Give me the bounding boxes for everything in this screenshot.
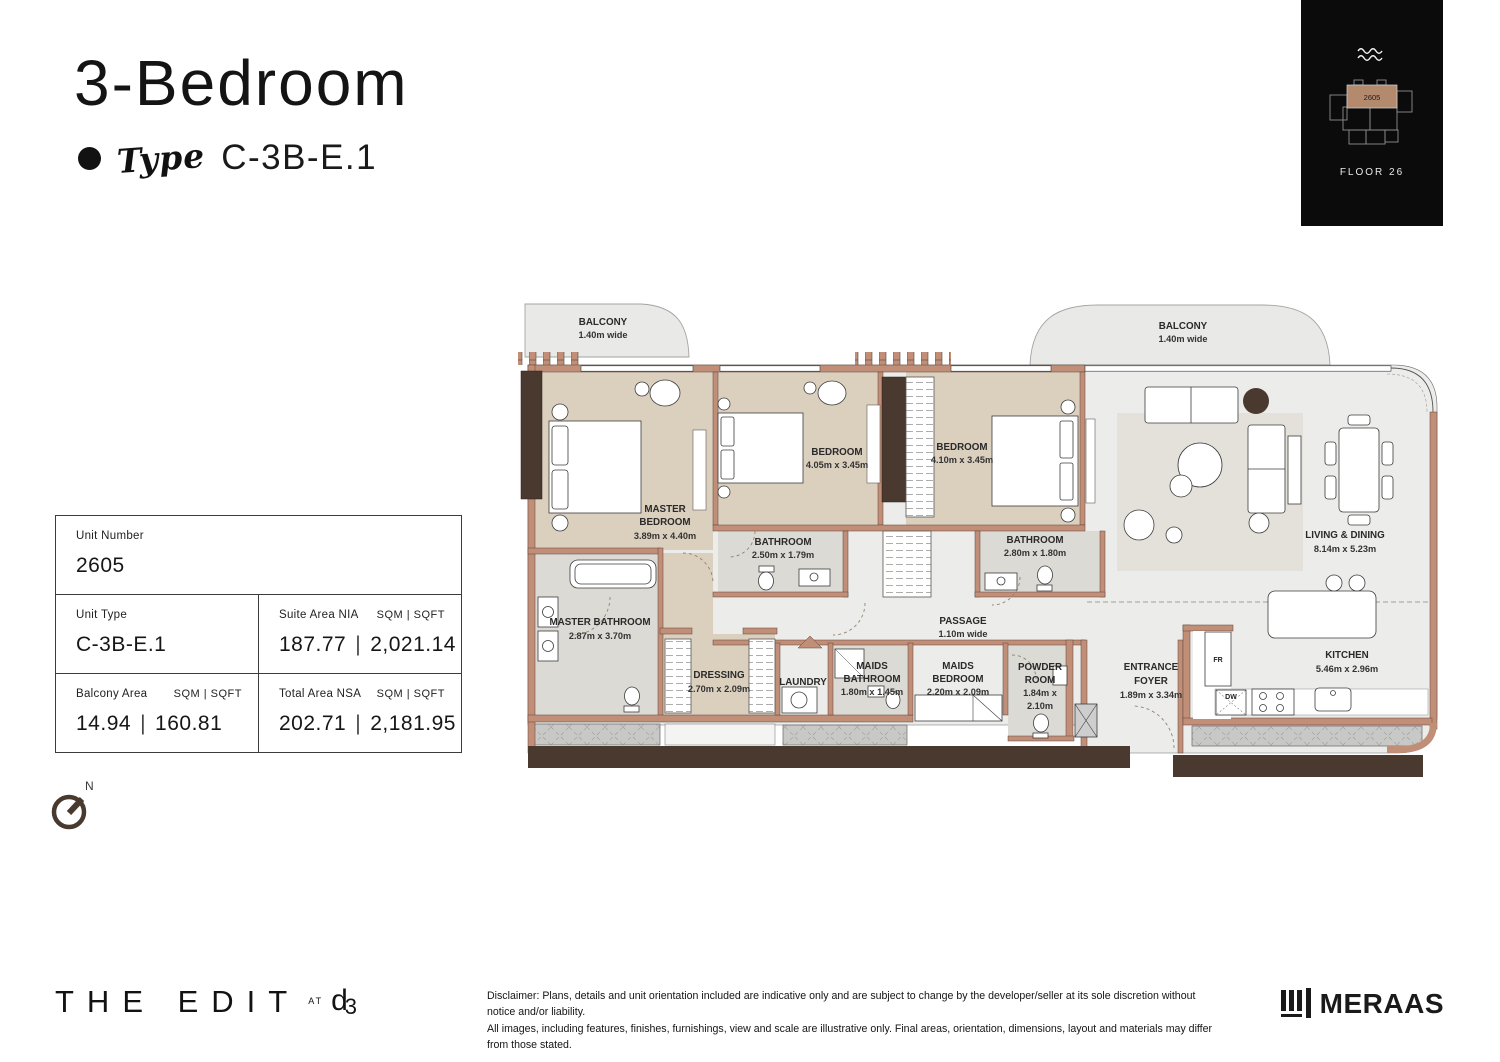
corridor-band-right bbox=[1173, 755, 1423, 777]
label-living-dining: LIVING & DINING bbox=[1305, 530, 1385, 541]
label-master-bathroom: MASTER BATHROOM bbox=[549, 617, 650, 628]
label-maids-bedroom-1: MAIDS bbox=[942, 661, 974, 672]
hatched-strips bbox=[530, 724, 1422, 746]
unit-number-label: Unit Number bbox=[76, 530, 461, 542]
page-title: 3-Bedroom bbox=[74, 46, 409, 120]
balcony-area-value: 14.94|160.81 bbox=[76, 712, 258, 736]
total-area-label: Total Area NSA bbox=[279, 688, 361, 700]
foyer-shaft bbox=[1075, 704, 1097, 737]
the-edit-wordmark: THE EDIT bbox=[55, 984, 300, 1020]
label-maids-bedroom-2: BEDROOM bbox=[932, 674, 983, 685]
meraas-bars-icon bbox=[1281, 990, 1302, 1017]
disclaimer-line-1: Disclaimer: Plans, details and unit orie… bbox=[487, 988, 1217, 1021]
label-passage-dim: 1.10m wide bbox=[938, 629, 987, 639]
label-kitchen-dim: 5.46m x 2.96m bbox=[1316, 664, 1378, 674]
maids-bed bbox=[915, 695, 1002, 721]
parapet-teeth-mid bbox=[855, 352, 951, 365]
disclaimer-text: Disclaimer: Plans, details and unit orie… bbox=[487, 988, 1217, 1054]
label-powder-2: ROOM bbox=[1025, 675, 1055, 686]
label-balcony-right-dim: 1.40m wide bbox=[1158, 334, 1207, 344]
label-laundry: LAUNDRY bbox=[779, 677, 827, 688]
keyplan-unit-number: 2605 bbox=[1363, 93, 1380, 102]
keyplan-panel: 2605 FLOOR 26 bbox=[1301, 0, 1443, 226]
label-bathroom1-dim: 2.50m x 1.79m bbox=[752, 550, 814, 560]
bullet-icon bbox=[78, 147, 101, 170]
label-bedroom2-dim: 4.05m x 3.45m bbox=[806, 460, 868, 470]
balcony-area-units: SQM | SQFT bbox=[174, 688, 242, 700]
suite-area-value: 187.77|2,021.14 bbox=[279, 633, 461, 657]
floorplan-svg: BALCONY 1.40m wide BALCONY 1.40m wide MA… bbox=[515, 295, 1445, 780]
suite-area-units: SQM | SQFT bbox=[377, 609, 445, 621]
total-area-value: 202.71|2,181.95 bbox=[279, 712, 461, 736]
label-dressing-dim: 2.70m x 2.09m bbox=[688, 684, 750, 694]
label-powder-dim1: 1.84m x bbox=[1023, 688, 1058, 698]
total-area-units: SQM | SQFT bbox=[377, 688, 445, 700]
suite-area-label: Suite Area NIA bbox=[279, 609, 359, 621]
disclaimer-line-2: All images, including features, finishes… bbox=[487, 1021, 1217, 1054]
master-bed bbox=[549, 404, 641, 531]
label-bathroom1: BATHROOM bbox=[755, 537, 812, 548]
label-powder-dim2: 2.10m bbox=[1027, 701, 1053, 711]
meraas-tall-bar-icon bbox=[1306, 988, 1311, 1018]
label-foyer-1: ENTRANCE bbox=[1124, 662, 1179, 673]
d3-logo-3: 3 bbox=[345, 994, 357, 1020]
compass-north-label: N bbox=[85, 779, 94, 793]
table-row-unit-number: Unit Number 2605 bbox=[56, 516, 461, 594]
label-dishwasher: DW bbox=[1225, 694, 1237, 701]
corridor-band-left bbox=[528, 746, 1130, 768]
balcony-area-label: Balcony Area bbox=[76, 688, 147, 700]
unit-info-table: Unit Number 2605 Unit Type C-3B-E.1 Suit… bbox=[55, 515, 462, 753]
unit-type-row: Type C-3B-E.1 bbox=[78, 138, 377, 178]
keyplan-floor-label: FLOOR 26 bbox=[1340, 167, 1404, 178]
meraas-logo: MERAAS bbox=[1281, 986, 1444, 1020]
floorplan-brochure-page: 3-Bedroom Type C-3B-E.1 2605 FLOOR 26 bbox=[0, 0, 1500, 1062]
label-maids-bathroom-2: BATHROOM bbox=[844, 674, 901, 685]
label-dressing: DRESSING bbox=[693, 670, 745, 681]
bedroom2-bed bbox=[718, 398, 803, 498]
the-edit-logo: THE EDIT AT d 3 bbox=[55, 984, 360, 1020]
meraas-wordmark: MERAAS bbox=[1320, 988, 1444, 1020]
label-living-dining-dim: 8.14m x 5.23m bbox=[1314, 544, 1376, 554]
unit-type-value: C-3B-E.1 bbox=[76, 633, 258, 657]
label-powder-1: POWDER bbox=[1018, 662, 1062, 673]
living-sofa-right bbox=[1248, 425, 1301, 513]
table-row-type-suite: Unit Type C-3B-E.1 Suite Area NIA SQM | … bbox=[56, 594, 461, 673]
label-bedroom3: BEDROOM bbox=[936, 442, 987, 453]
unit-type-label: Unit Type bbox=[76, 609, 258, 621]
label-bathroom2: BATHROOM bbox=[1007, 535, 1064, 546]
living-side-table-dark bbox=[1243, 388, 1269, 414]
label-maids-bathroom-dim: 1.80m x 1.45m bbox=[841, 687, 903, 697]
label-fridge: FR bbox=[1213, 657, 1222, 664]
label-master-bedroom-dim: 3.89m x 4.40m bbox=[634, 531, 696, 541]
label-maids-bedroom-dim: 2.20m x 2.09m bbox=[927, 687, 989, 697]
parapet-teeth-left bbox=[518, 352, 584, 365]
the-edit-at: AT bbox=[308, 996, 323, 1006]
label-kitchen: KITCHEN bbox=[1325, 650, 1369, 661]
type-label: Type bbox=[116, 135, 207, 180]
laundry-washer bbox=[782, 687, 817, 713]
label-bedroom3-dim: 4.10m x 3.45m bbox=[931, 455, 993, 465]
compass-needle-icon bbox=[69, 799, 82, 813]
label-master-bathroom-dim: 2.87m x 3.70m bbox=[569, 631, 631, 641]
living-sofa-top bbox=[1145, 387, 1238, 423]
table-row-balcony-total: Balcony Area SQM | SQFT 14.94|160.81 Tot… bbox=[56, 673, 461, 752]
label-bedroom2: BEDROOM bbox=[811, 447, 862, 458]
label-foyer-dim: 1.89m x 3.34m bbox=[1120, 690, 1182, 700]
unit-number-value: 2605 bbox=[76, 554, 461, 578]
waves-icon bbox=[1356, 46, 1388, 63]
keyplan-building-outline: 2605 bbox=[1320, 71, 1425, 157]
label-balcony-left: BALCONY bbox=[579, 317, 628, 328]
type-value: C-3B-E.1 bbox=[221, 138, 377, 178]
label-maids-bathroom-1: MAIDS bbox=[856, 661, 888, 672]
bedroom3-bed bbox=[992, 400, 1078, 522]
label-foyer-2: FOYER bbox=[1134, 676, 1168, 687]
north-compass: N bbox=[48, 776, 100, 839]
label-balcony-right: BALCONY bbox=[1159, 321, 1208, 332]
label-bathroom2-dim: 2.80m x 1.80m bbox=[1004, 548, 1066, 558]
label-master-bedroom-1: MASTER bbox=[644, 504, 685, 515]
label-balcony-left-dim: 1.40m wide bbox=[578, 330, 627, 340]
label-master-bedroom-2: BEDROOM bbox=[639, 517, 690, 528]
label-passage: PASSAGE bbox=[939, 616, 987, 627]
